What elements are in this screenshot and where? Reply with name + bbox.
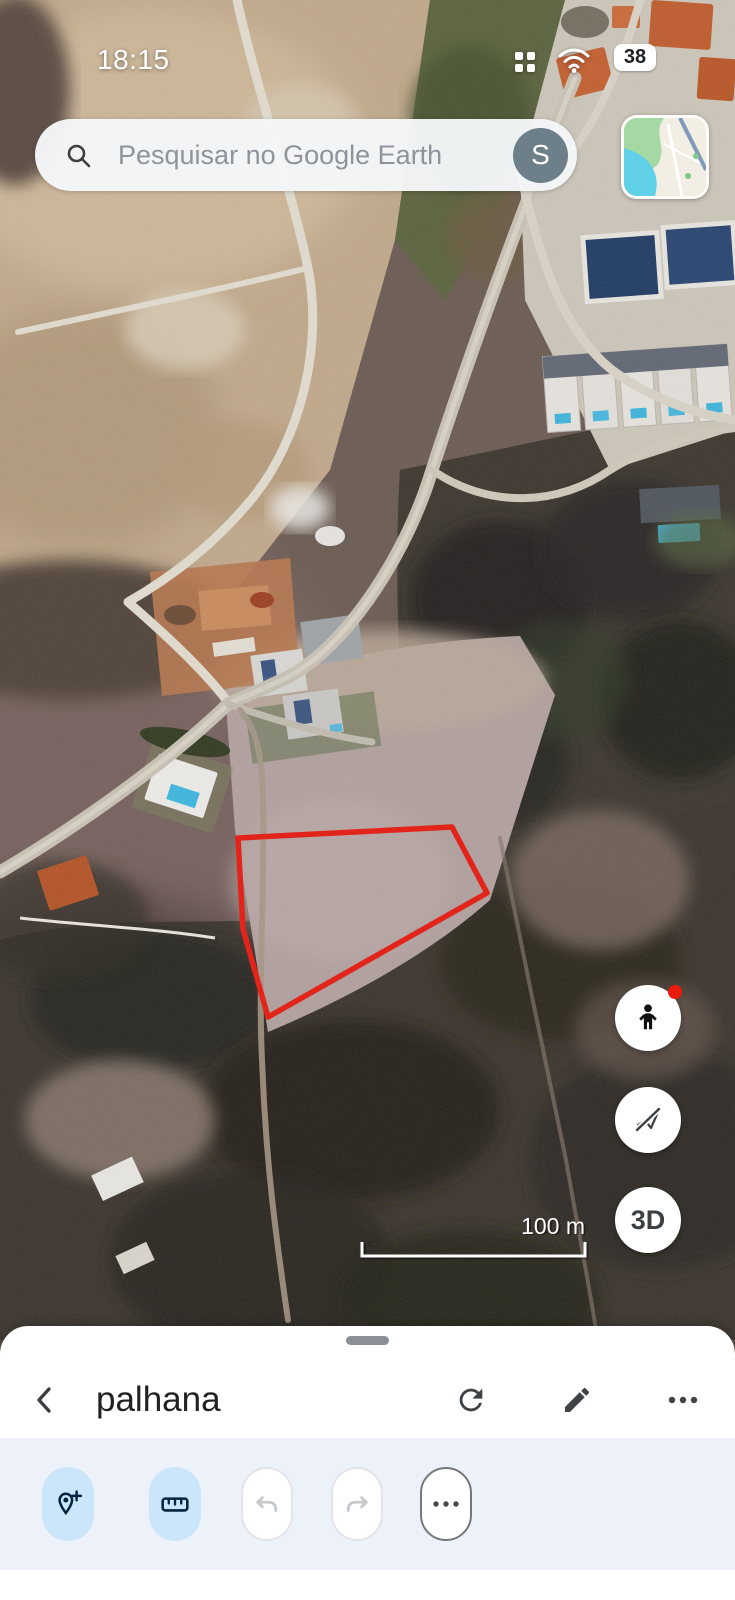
fly-mode-off-button[interactable]	[615, 1087, 681, 1153]
battery-icon: 38	[614, 44, 656, 71]
search-bar[interactable]: S	[35, 119, 577, 191]
sheet-actions	[453, 1382, 701, 1418]
minimap-art	[624, 118, 706, 196]
undo-button[interactable]	[241, 1467, 293, 1541]
flight-off-icon	[631, 1103, 665, 1137]
battery-percent: 38	[624, 46, 646, 69]
add-placemark-button[interactable]	[42, 1467, 94, 1541]
edit-pencil-icon	[561, 1384, 593, 1416]
scale-label: 100 m	[521, 1213, 585, 1239]
redo-button[interactable]	[331, 1467, 383, 1541]
overflow-menu-button[interactable]	[665, 1382, 701, 1418]
edit-button[interactable]	[559, 1382, 595, 1418]
search-icon	[65, 142, 92, 169]
back-button[interactable]	[22, 1378, 66, 1422]
pegman-icon	[633, 1002, 663, 1034]
measure-ruler-icon	[160, 1489, 190, 1519]
3d-label: 3D	[631, 1205, 666, 1236]
redo-icon	[343, 1490, 371, 1518]
project-title: palhana	[96, 1380, 221, 1420]
map-style-thumbnail[interactable]	[621, 115, 709, 199]
add-placemark-icon	[54, 1490, 82, 1518]
3d-toggle-button[interactable]: 3D	[615, 1187, 681, 1253]
search-input[interactable]	[116, 139, 513, 172]
refresh-button[interactable]	[453, 1382, 489, 1418]
account-avatar[interactable]: S	[513, 128, 568, 183]
google-earth-app: 100 m 100 m 18:15 38 S	[0, 0, 735, 1600]
wifi-icon	[558, 46, 590, 74]
app-grid-icon	[514, 51, 536, 73]
street-view-button[interactable]	[615, 985, 681, 1051]
street-view-badge	[668, 985, 682, 999]
refresh-icon	[454, 1383, 488, 1417]
sheet-header: palhana	[0, 1362, 735, 1438]
overflow-dots-icon	[667, 1395, 699, 1405]
measure-button[interactable]	[149, 1467, 201, 1541]
status-time: 18:15	[97, 44, 170, 76]
back-chevron-icon	[31, 1385, 57, 1415]
sheet-drag-handle[interactable]	[346, 1336, 389, 1345]
undo-icon	[253, 1490, 281, 1518]
more-tools-button[interactable]	[420, 1467, 472, 1541]
edit-toolbar	[0, 1438, 735, 1570]
more-dots-icon	[432, 1500, 460, 1508]
project-bottom-sheet: palhana	[0, 1326, 735, 1600]
